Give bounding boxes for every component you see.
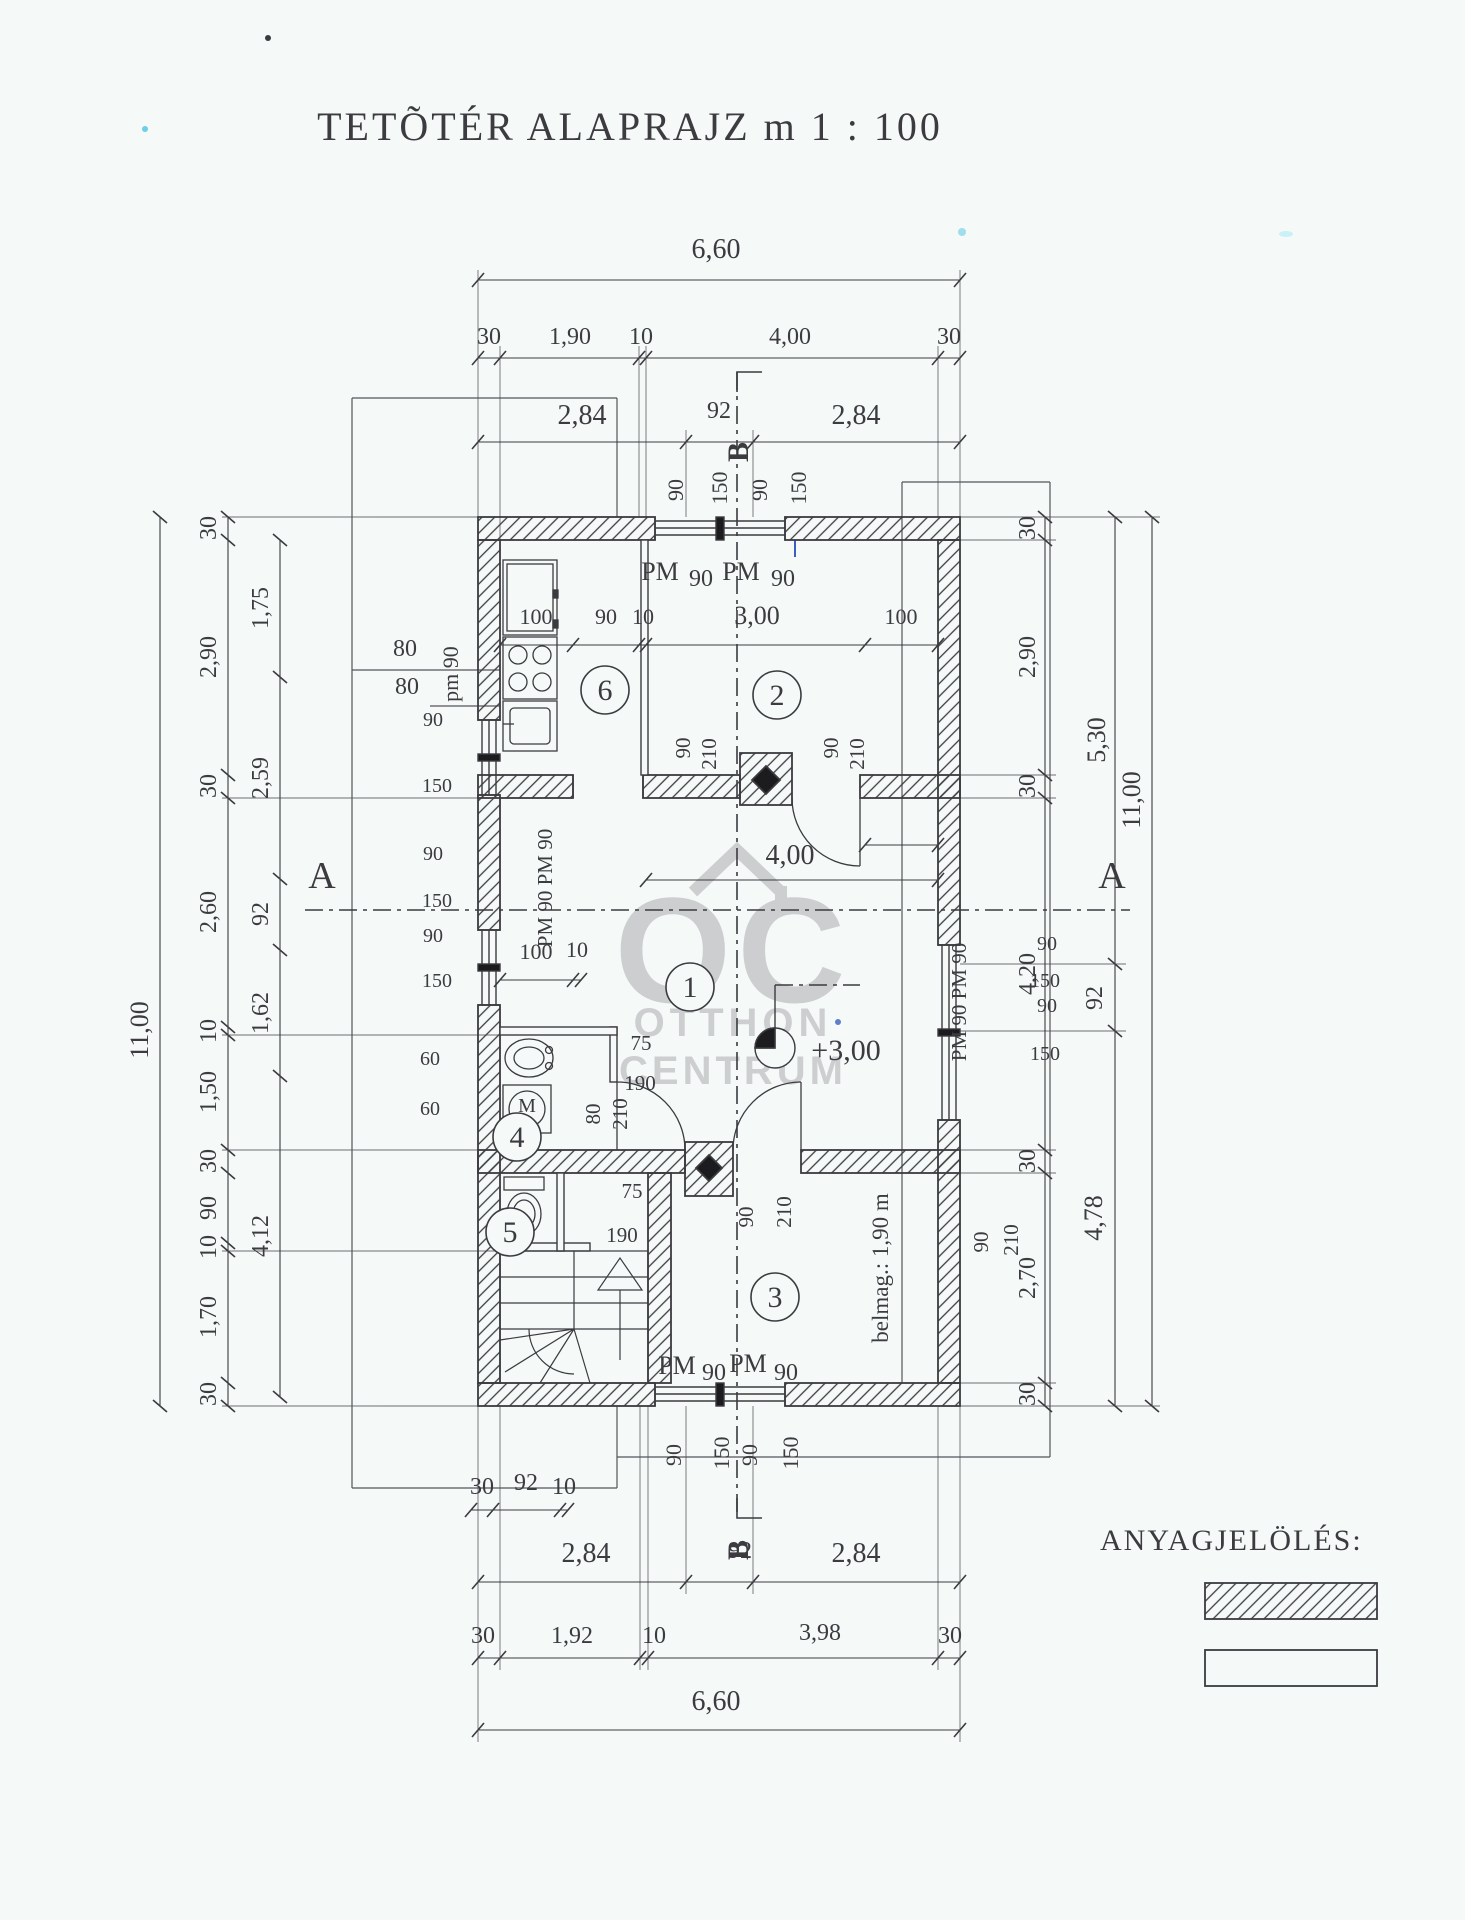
dim-label: 90 <box>423 925 443 947</box>
stair-direction-arrow <box>598 1258 642 1290</box>
dim-label: 10 <box>566 937 588 962</box>
dim-label: 10 <box>196 1019 222 1043</box>
scanned-floor-plan-page: TETÕTÉR ALAPRAJZ m 1 : 100 OC OTTHON CEN… <box>0 0 1465 1920</box>
dim-label: 2,84 <box>558 400 607 431</box>
dim-label: 75 <box>631 1031 652 1055</box>
dim-label: 5,30 <box>1082 717 1111 763</box>
dim-label: 60 <box>420 1098 440 1120</box>
dim-label: 6,60 <box>692 234 741 265</box>
material-legend: ANYAGJELÖLÉS: <box>1100 1524 1377 1686</box>
dim-label: 3,98 <box>799 1620 841 1646</box>
dim-label: 210 <box>697 738 721 770</box>
dim-label: 10 <box>642 1623 666 1649</box>
dim-chain <box>494 638 944 652</box>
dim-chain <box>472 435 966 449</box>
dim-label: 90 <box>423 709 443 731</box>
dim-chain <box>153 511 167 1412</box>
dim-label: 100 <box>520 604 553 629</box>
svg-text:2: 2 <box>770 679 785 712</box>
dim-label: 92 <box>514 1470 538 1496</box>
room-number-6: 6 <box>581 666 629 714</box>
dim-label: 80 <box>581 1104 605 1125</box>
dim-label: 4,78 <box>1079 1195 1108 1241</box>
dim-label: 11,00 <box>125 1001 154 1059</box>
legend-hatched-swatch <box>1205 1583 1377 1619</box>
dim-label: +3,00 <box>811 1034 880 1067</box>
dim-label: 90 <box>671 738 695 759</box>
dim-label: 6,60 <box>692 1686 741 1717</box>
dim-label: 30 <box>1015 516 1041 540</box>
dim-label: 90 <box>819 738 843 759</box>
dim-label: 80 <box>395 674 419 700</box>
room-number-3: 3 <box>751 1273 799 1321</box>
dim-label: 92 <box>707 398 731 424</box>
dim-label: 150 <box>709 1437 734 1470</box>
dim-label: PM <box>729 1349 767 1378</box>
dim-chain <box>221 511 235 1412</box>
window-top <box>655 517 785 540</box>
dim-label: 90 <box>737 1444 762 1466</box>
window-left-upper <box>478 720 500 795</box>
dim-chain <box>465 1503 574 1517</box>
dim-label: 150 <box>707 472 732 505</box>
dim-label: PM <box>722 557 760 586</box>
dim-label: B <box>722 442 755 462</box>
dim-label: 210 <box>999 1224 1023 1256</box>
dim-chain <box>472 1723 966 1737</box>
dim-label: 10 <box>196 1235 222 1259</box>
stove-icon <box>503 637 557 699</box>
dim-label: 210 <box>608 1098 632 1130</box>
dim-label: 30 <box>196 774 222 798</box>
dim-label: PM <box>658 1351 696 1380</box>
dim-label: 90 <box>774 1360 798 1386</box>
dim-label: 2,84 <box>832 400 881 431</box>
dim-label: 92 <box>248 902 274 926</box>
dim-label: PM 90 PM 90 <box>947 943 971 1061</box>
dim-label: 90 <box>196 1196 222 1220</box>
svg-text:1: 1 <box>683 971 698 1004</box>
dim-label: 90 <box>423 843 443 865</box>
dim-chain <box>472 1575 966 1589</box>
dim-label: 90 <box>1037 995 1057 1017</box>
dim-chain <box>1108 511 1122 1412</box>
dim-label: 30 <box>196 1149 222 1173</box>
dim-label: 90 <box>1037 933 1057 955</box>
page-title: TETÕTÉR ALAPRAJZ m 1 : 100 <box>317 104 943 149</box>
dim-label: 2,90 <box>1015 636 1041 678</box>
dim-label: 2,90 <box>196 636 222 678</box>
dim-label: 90 <box>771 566 795 592</box>
room-number-2: 2 <box>753 671 801 719</box>
dim-label: 60 <box>420 1048 440 1070</box>
dim-label: 4,12 <box>248 1215 274 1257</box>
dim-label: 10 <box>629 324 653 350</box>
dim-label: 2,84 <box>832 1538 881 1569</box>
dim-label: 100 <box>885 604 918 629</box>
svg-text:4: 4 <box>510 1121 525 1154</box>
dim-label: 30 <box>937 324 961 350</box>
washbasin-icon <box>505 1039 553 1077</box>
dim-label: 10 <box>552 1474 576 1500</box>
dim-label: 90 <box>661 1444 686 1466</box>
dim-label: 90 <box>969 1232 993 1253</box>
dim-label: 75 <box>622 1179 643 1203</box>
room-number-5: 5 <box>486 1208 534 1256</box>
dim-label: 90 <box>595 604 617 629</box>
dim-label: PM 90 PM 90 <box>533 829 557 947</box>
dim-label: 150 <box>422 890 452 912</box>
dim-label: 30 <box>1015 1382 1041 1406</box>
dim-chain <box>273 534 287 1403</box>
dim-label: 100 <box>520 939 553 964</box>
room-number-4: 4 <box>493 1113 541 1161</box>
dim-label: 150 <box>778 1437 803 1470</box>
dim-chain <box>1145 511 1159 1412</box>
dim-label: 4,20 <box>1015 953 1041 995</box>
dim-label: 10 <box>632 604 654 629</box>
dim-label: 2,84 <box>562 1538 611 1569</box>
dim-label: 30 <box>196 516 222 540</box>
dim-label: PM <box>641 557 679 586</box>
dim-label: belmag.: 1,90 m <box>868 1193 893 1343</box>
dim-label: A <box>1098 855 1126 897</box>
room-number-1: 1 <box>666 963 714 1011</box>
dim-label: 150 <box>422 775 452 797</box>
dim-label: 190 <box>606 1223 638 1247</box>
staircase <box>500 1251 648 1383</box>
svg-text:5: 5 <box>503 1216 518 1249</box>
window-left-lower <box>478 930 500 1005</box>
watermark-line1: OTTHON <box>634 1001 833 1045</box>
dim-label: 150 <box>422 970 452 992</box>
dim-label: 30 <box>471 1623 495 1649</box>
kitchen-fixtures <box>503 560 558 751</box>
dim-label: 92 <box>728 1538 752 1564</box>
dim-label: 90 <box>702 1360 726 1386</box>
dim-chain <box>494 973 587 987</box>
dim-label: 30 <box>470 1474 494 1500</box>
dim-label: 30 <box>938 1623 962 1649</box>
dim-label: 90 <box>689 566 713 592</box>
dim-label: 90 <box>747 479 772 501</box>
dim-label: 30 <box>477 324 501 350</box>
dim-label: 1,50 <box>196 1071 222 1113</box>
dim-label: 2,59 <box>248 757 274 799</box>
dim-label: 90 <box>734 1207 758 1228</box>
dim-label: 11,00 <box>1117 771 1146 829</box>
dim-label: 92 <box>1082 986 1108 1010</box>
dim-label: 150 <box>786 472 811 505</box>
dim-label: A <box>308 855 336 897</box>
svg-text:6: 6 <box>598 674 613 707</box>
dim-label: 30 <box>1015 1149 1041 1173</box>
dim-label: 1,90 <box>549 324 591 350</box>
dim-label: pm 90 <box>438 646 463 702</box>
legend-heading: ANYAGJELÖLÉS: <box>1100 1524 1363 1557</box>
dim-label: 210 <box>845 738 869 770</box>
dim-label: 30 <box>1015 774 1041 798</box>
kitchen-sink-icon <box>503 701 557 751</box>
dim-label: 210 <box>772 1196 796 1228</box>
dim-label: 190 <box>624 1071 656 1095</box>
dim-label: 1,62 <box>248 992 274 1034</box>
dim-label: 1,70 <box>196 1296 222 1338</box>
dim-label: 80 <box>393 636 417 662</box>
dim-label: 1,92 <box>551 1623 593 1649</box>
window-bottom <box>655 1383 785 1406</box>
dim-label: 4,00 <box>769 324 811 350</box>
dim-label: 1,75 <box>248 587 274 629</box>
dim-label: 150 <box>1030 1043 1060 1065</box>
dim-label: 30 <box>196 1382 222 1406</box>
dim-chain <box>472 1651 966 1665</box>
dim-label: 90 <box>663 479 688 501</box>
legend-empty-swatch <box>1205 1650 1377 1686</box>
floor-plan-svg: TETÕTÉR ALAPRAJZ m 1 : 100 OC OTTHON CEN… <box>0 0 1465 1920</box>
dim-label: 4,00 <box>766 840 815 871</box>
dim-chain <box>472 351 966 365</box>
svg-text:3: 3 <box>768 1281 783 1314</box>
dim-chain <box>472 273 966 287</box>
dim-label: 3,00 <box>734 601 780 630</box>
dim-label: 2,60 <box>196 891 222 933</box>
dim-label: 2,70 <box>1015 1257 1041 1299</box>
